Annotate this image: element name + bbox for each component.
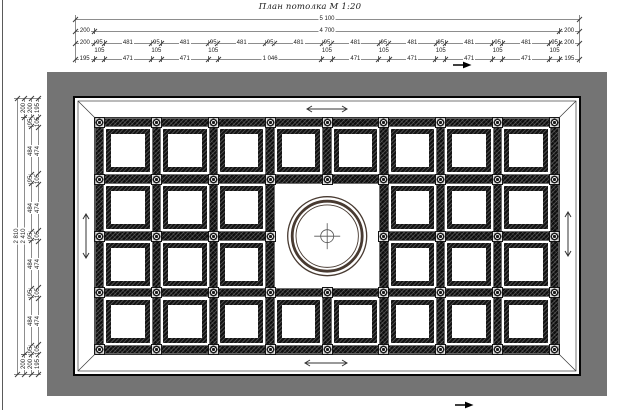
dimension-label: 484 — [28, 145, 34, 157]
coffer-cell — [502, 241, 550, 289]
dimension-label: 484 — [28, 258, 34, 270]
dimension-label: 471 — [349, 56, 361, 62]
rosette — [94, 117, 105, 128]
coffer-cell — [218, 241, 266, 289]
coffer-center — [339, 134, 373, 168]
coffer-cell — [389, 184, 437, 232]
rosette — [151, 231, 162, 242]
coffer-cell — [445, 241, 493, 289]
coffer-cell — [275, 127, 323, 175]
coffer-center — [396, 305, 430, 339]
coffer-center — [339, 305, 373, 339]
rosette — [492, 117, 503, 128]
rosette — [378, 174, 389, 185]
dimension-label: 481 — [179, 40, 191, 46]
dimension-label: 471 — [520, 56, 532, 62]
dimension-label: 4 700 — [318, 28, 335, 34]
dimension-label: 105 — [150, 48, 162, 54]
coffer-center — [509, 305, 543, 339]
dimension-label: 200 — [563, 40, 575, 46]
rosette — [492, 231, 503, 242]
rosette — [549, 344, 560, 355]
dimension-label: 471 — [122, 56, 134, 62]
dimension-label: 474 — [35, 202, 41, 214]
rosette — [208, 344, 219, 355]
dimension-label: 200 — [21, 102, 27, 114]
coffer-cell — [104, 127, 152, 175]
coffer-center — [509, 248, 543, 282]
rosette — [151, 117, 162, 128]
dimension-label: 105 — [321, 48, 333, 54]
rosette — [208, 174, 219, 185]
rosette — [208, 231, 219, 242]
coffer-center — [111, 248, 145, 282]
dimension-label: 195 — [79, 56, 91, 62]
page: План потолка М 1:20 5 1002004 7002002009… — [0, 0, 620, 410]
ceiling-plan-sheet — [73, 96, 581, 376]
dimension-label: 200 — [28, 102, 34, 114]
rosette — [94, 231, 105, 242]
rosette — [549, 231, 560, 242]
dimension-label: 105 — [435, 48, 447, 54]
rosette — [378, 344, 389, 355]
coffer-center — [111, 305, 145, 339]
dimension-label: 481 — [122, 40, 134, 46]
rosette — [549, 287, 560, 298]
rosette — [435, 287, 446, 298]
coffer-center — [168, 134, 202, 168]
rosette — [435, 344, 446, 355]
dimension-end-line — [579, 15, 580, 63]
dimension-label: 195 — [563, 56, 575, 62]
rosette — [94, 287, 105, 298]
dimension-label: 481 — [293, 40, 305, 46]
drawing-title: План потолка М 1:20 — [259, 2, 362, 12]
dimension-label: 200 — [563, 28, 575, 34]
dimension-label: 200 — [79, 28, 91, 34]
coffer-center — [282, 134, 316, 168]
dimension-label: 5 100 — [318, 16, 335, 22]
dimension-label: 484 — [28, 202, 34, 214]
dimension-label: 1 046 — [262, 56, 279, 62]
coffer-center — [168, 305, 202, 339]
rosette — [265, 344, 276, 355]
rosette — [322, 344, 333, 355]
coffer-center — [396, 191, 430, 225]
center-medallion-panel — [275, 184, 379, 288]
dimension-label: 471 — [406, 56, 418, 62]
dimension-label: 481 — [349, 40, 361, 46]
cursor-arrow-top-icon — [452, 60, 473, 70]
coffer-center — [452, 134, 486, 168]
dimension-label: 200 — [79, 40, 91, 46]
rosette — [94, 174, 105, 185]
coffer-cell — [445, 127, 493, 175]
coffer-center — [452, 248, 486, 282]
coffer-cell — [218, 127, 266, 175]
rosette — [435, 117, 446, 128]
coffer-cell — [389, 298, 437, 346]
coffer-cell — [161, 298, 209, 346]
rosette — [435, 174, 446, 185]
coffer-cell — [502, 298, 550, 346]
coffer-cell — [389, 241, 437, 289]
coffer-center — [225, 191, 259, 225]
coffer-center — [509, 134, 543, 168]
dimension-label: 481 — [520, 40, 532, 46]
rosette — [549, 174, 560, 185]
medallion-rings-icon — [275, 184, 379, 288]
dimension-label: 200 — [28, 358, 34, 370]
coffer-center — [509, 191, 543, 225]
dimension-label: 481 — [406, 40, 418, 46]
coffer-center — [396, 248, 430, 282]
coffer-center — [168, 191, 202, 225]
dimension-label: 195 — [35, 102, 41, 114]
rosette — [492, 174, 503, 185]
dimension-label: 484 — [28, 315, 34, 327]
coffer-cell — [218, 298, 266, 346]
rosette — [94, 344, 105, 355]
coffer-cell — [332, 127, 380, 175]
rosette — [322, 287, 333, 298]
rosette — [322, 117, 333, 128]
coffer-center — [396, 134, 430, 168]
dimension-end-line — [75, 15, 76, 63]
dimension-label: 105 — [207, 48, 219, 54]
dimension-label: 105 — [93, 48, 105, 54]
dimension-label: 105 — [549, 48, 561, 54]
rosette — [322, 174, 333, 185]
dimension-label: 481 — [236, 40, 248, 46]
coffer-cell — [161, 184, 209, 232]
coffer-center — [225, 134, 259, 168]
coffer-center — [225, 248, 259, 282]
dimension-label: 474 — [35, 145, 41, 157]
coffer-center — [111, 134, 145, 168]
coffer-cell — [502, 127, 550, 175]
coffer-cell — [275, 298, 323, 346]
rosette — [151, 174, 162, 185]
rosette — [378, 231, 389, 242]
rosette — [208, 117, 219, 128]
rosette — [151, 287, 162, 298]
coffer-center — [452, 191, 486, 225]
rosette — [265, 174, 276, 185]
coffer-center — [452, 305, 486, 339]
coffer-cell — [218, 184, 266, 232]
coffer-cell — [332, 298, 380, 346]
cursor-arrow-bottom-icon — [454, 400, 475, 410]
rosette — [151, 344, 162, 355]
coffer-center — [225, 305, 259, 339]
dimension-label: 195 — [35, 358, 41, 370]
dimension-label: 471 — [179, 56, 191, 62]
rosette — [265, 231, 276, 242]
coffer-cell — [161, 241, 209, 289]
rosette — [549, 117, 560, 128]
rosette — [265, 117, 276, 128]
dimension-label: 474 — [35, 258, 41, 270]
dimension-label: 105 — [378, 48, 390, 54]
rosette — [435, 231, 446, 242]
dimension-label: 474 — [35, 315, 41, 327]
rosette — [208, 287, 219, 298]
dimension-label: 200 — [21, 358, 27, 370]
dimension-label: 481 — [463, 40, 475, 46]
coffer-cell — [104, 298, 152, 346]
rosette — [265, 287, 276, 298]
rosette — [378, 117, 389, 128]
coffer-cell — [389, 127, 437, 175]
window-left-edge — [2, 0, 3, 410]
coffer-cell — [104, 241, 152, 289]
coffer-cell — [104, 184, 152, 232]
coffer-center — [282, 305, 316, 339]
dimension-label: 2 810 — [14, 227, 20, 244]
rosette — [492, 287, 503, 298]
coffer-cell — [161, 127, 209, 175]
coffer-cell — [445, 184, 493, 232]
rosette — [492, 344, 503, 355]
dimension-label: 2 410 — [21, 227, 27, 244]
coffer-cell — [445, 298, 493, 346]
rosette — [378, 287, 389, 298]
dimension-label: 105 — [492, 48, 504, 54]
coffer-center — [111, 191, 145, 225]
coffer-center — [168, 248, 202, 282]
coffer-cell — [502, 184, 550, 232]
